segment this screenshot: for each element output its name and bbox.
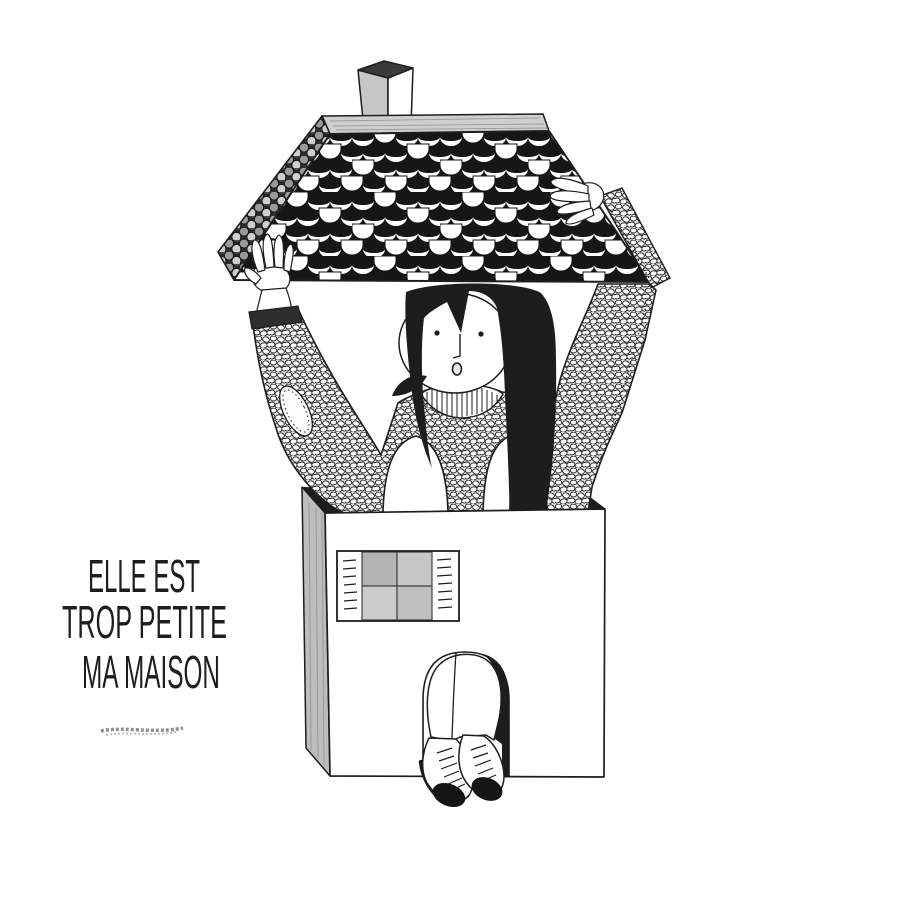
house	[302, 487, 605, 812]
window	[337, 551, 459, 621]
caption-line-3: MA MAISON	[82, 646, 220, 698]
doorway	[421, 652, 509, 812]
eye-left	[434, 330, 439, 335]
left-finger-3	[274, 235, 283, 268]
right-finger-2	[550, 191, 589, 202]
window-panes	[362, 552, 432, 620]
eye-right	[478, 331, 483, 336]
caption-line-2: TROP PETITE	[62, 596, 227, 648]
caption-line-1: ELLE EST	[88, 550, 200, 602]
legs	[427, 654, 501, 741]
mouth	[453, 363, 462, 375]
illustration-page: ELLE EST TROP PETITE MA MAISON	[0, 0, 905, 905]
illustration-canvas: ELLE EST TROP PETITE MA MAISON	[0, 0, 905, 905]
